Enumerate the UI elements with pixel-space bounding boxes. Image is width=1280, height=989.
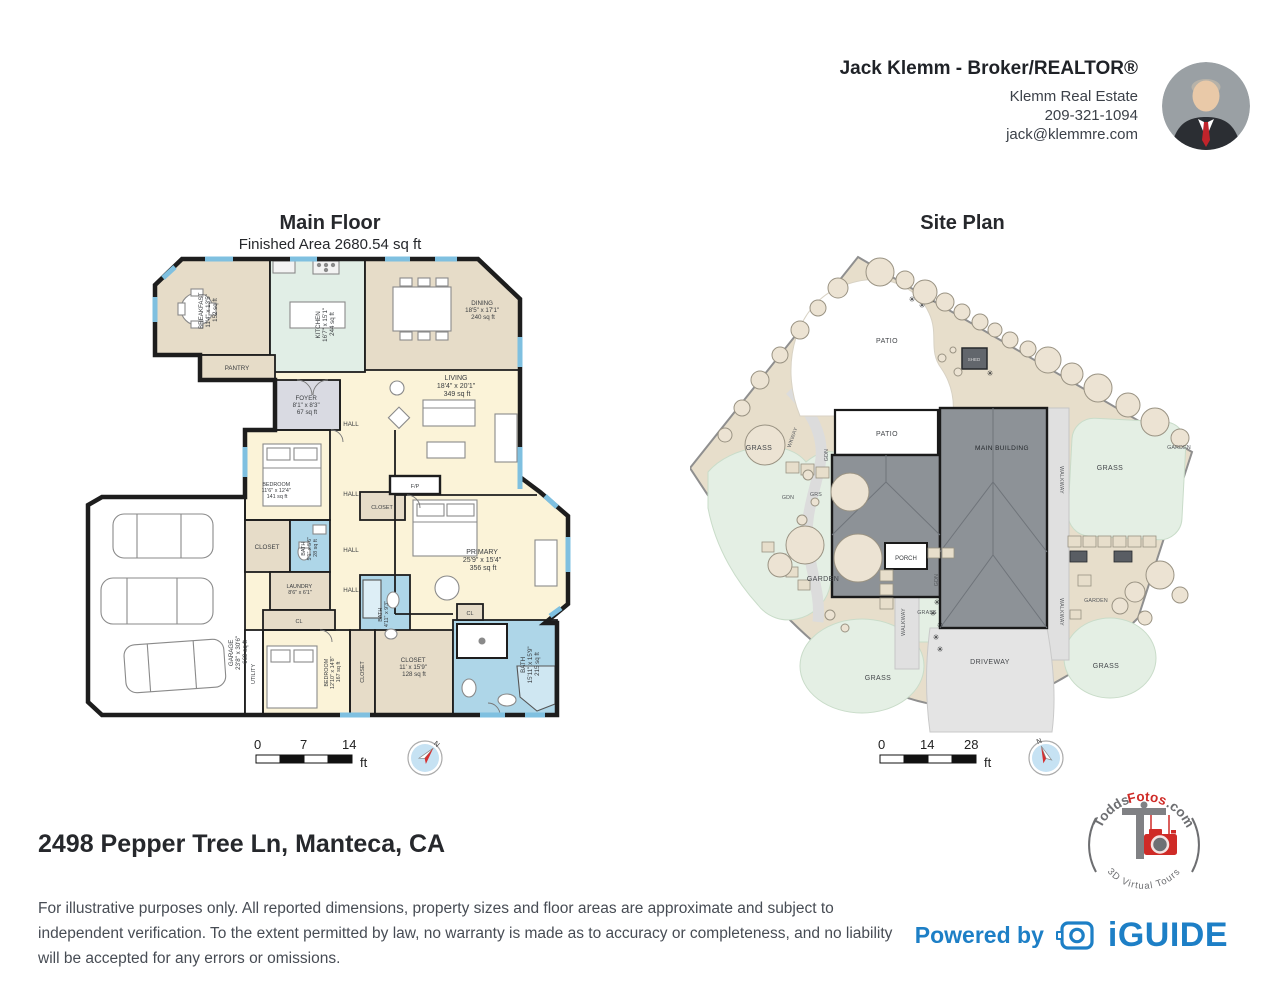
scale-tick: 7 bbox=[300, 737, 307, 752]
hall-label: HALL bbox=[343, 421, 359, 428]
gdn-label: GDN bbox=[782, 495, 794, 501]
patio-label: PATIO bbox=[876, 338, 898, 345]
gdn-label: GDN bbox=[824, 449, 830, 461]
patio-label: PATIO bbox=[876, 431, 898, 438]
agent-headshot-image bbox=[1162, 62, 1250, 150]
svg-text:3D Virtual Tours: 3D Virtual Tours bbox=[1105, 866, 1183, 892]
grs-label: GRS bbox=[810, 492, 822, 498]
site-plan-title: Site Plan bbox=[690, 212, 1235, 235]
garden-label: GARDEN bbox=[807, 576, 839, 583]
grass-label: GRASS bbox=[865, 675, 892, 682]
garden-label: GARDEN bbox=[1084, 598, 1108, 604]
grass-label: GRASS bbox=[1097, 465, 1124, 472]
scale-tick: 28 bbox=[964, 737, 978, 752]
agent-headshot bbox=[1162, 62, 1250, 150]
main-floor-title: Main Floor bbox=[85, 212, 575, 235]
scale-tick: 14 bbox=[920, 737, 934, 752]
shed-label: SHED bbox=[968, 357, 981, 362]
site-plan: ✳✳✳✳✳ ✳✳✳✳✳ ✳ PATIO SHED PATIO MAIN BUIL… bbox=[690, 250, 1235, 740]
room-label-pantry: PANTRY bbox=[225, 365, 250, 372]
room-label-closet2: CLOSET 11' x 15'9" 128 sq ft bbox=[399, 657, 429, 678]
grass-label: GRASS bbox=[917, 610, 937, 616]
room-label-utility: UTILITY bbox=[251, 664, 257, 684]
main-floor-plan: BREAKFAST 11'4" x 13'5" 152 sq ft KITCHE… bbox=[85, 252, 575, 730]
scale-unit: ft bbox=[984, 755, 992, 770]
porch-label: PORCH bbox=[895, 556, 917, 562]
closet-label: CLOSET bbox=[255, 544, 280, 551]
gdn-label: GDN bbox=[934, 574, 940, 586]
grass-label: GRASS bbox=[1093, 663, 1120, 670]
logo-tagline: 3D Virtual Tours bbox=[1105, 866, 1183, 892]
main-floor-scale-bar: 0 7 14 ft bbox=[248, 735, 388, 777]
main-building-label: MAIN BUILDING bbox=[975, 445, 1029, 452]
closet-label: CLOSET bbox=[360, 661, 366, 683]
main-floor-subtitle: Finished Area 2680.54 sq ft bbox=[85, 236, 575, 253]
scale-tick: 0 bbox=[878, 737, 885, 752]
agent-email: jack@klemmre.com bbox=[840, 125, 1138, 144]
agent-name: Jack Klemm - Broker/REALTOR® bbox=[840, 58, 1138, 80]
scale-tick: 0 bbox=[254, 737, 261, 752]
cl-label: CL bbox=[296, 619, 303, 625]
svg-text:✳: ✳ bbox=[987, 369, 994, 378]
powered-by-block: Powered by iGUIDE bbox=[915, 916, 1228, 955]
fireplace-label: F/P bbox=[411, 484, 420, 490]
main-floor-compass: N bbox=[401, 734, 449, 782]
hall-label: HALL bbox=[343, 587, 359, 594]
svg-text:✳: ✳ bbox=[937, 645, 944, 654]
svg-text:✳: ✳ bbox=[934, 598, 941, 607]
agent-company: Klemm Real Estate bbox=[840, 87, 1138, 106]
agent-info: Jack Klemm - Broker/REALTOR® Klemm Real … bbox=[840, 58, 1138, 144]
walkway-label: WALKWAY bbox=[1058, 598, 1064, 626]
property-address: 2498 Pepper Tree Ln, Manteca, CA bbox=[38, 830, 445, 859]
hall-label: HALL bbox=[343, 491, 359, 498]
room-label-foyer: FOYER 8'1" x 8'3" 67 sq ft bbox=[293, 395, 322, 416]
site-plan-compass: N bbox=[1022, 734, 1070, 782]
main-building bbox=[832, 408, 1047, 628]
agent-phone: 209-321-1094 bbox=[840, 106, 1138, 125]
logo-ring-left bbox=[1089, 818, 1096, 872]
iguide-icon bbox=[1056, 920, 1096, 952]
cl-label: CL bbox=[467, 611, 474, 617]
scale-tick: 14 bbox=[342, 737, 356, 752]
room-label-laundry: LAUNDRY 8'6" x 6'1" bbox=[286, 584, 313, 596]
svg-text:✳: ✳ bbox=[937, 621, 944, 630]
svg-text:✳: ✳ bbox=[933, 633, 940, 642]
site-plan-scale-bar: 0 14 28 ft bbox=[872, 735, 1012, 777]
walkway-label: WALKWAY bbox=[901, 608, 907, 636]
hall-label: HALL bbox=[343, 547, 359, 554]
scale-unit: ft bbox=[360, 755, 368, 770]
powered-by-label: Powered by bbox=[915, 922, 1044, 949]
walkway-label: WALKWAY bbox=[1058, 466, 1064, 494]
toddsfotos-logo: Todds Fotos .com 3D Virtual Tours bbox=[1072, 778, 1222, 910]
flyer-page: { "agent": { "name": "Jack Klemm - Broke… bbox=[0, 0, 1280, 989]
grass-label: GRASS bbox=[746, 445, 773, 452]
disclaimer-text: For illustrative purposes only. All repo… bbox=[38, 896, 898, 971]
iguide-wordmark: iGUIDE bbox=[1108, 916, 1228, 955]
driveway-label: DRIVEWAY bbox=[970, 659, 1010, 666]
logo-ring-right bbox=[1192, 818, 1199, 872]
garden-label: GARDEN bbox=[1167, 445, 1191, 451]
closet-label: CLOSET bbox=[371, 505, 393, 511]
